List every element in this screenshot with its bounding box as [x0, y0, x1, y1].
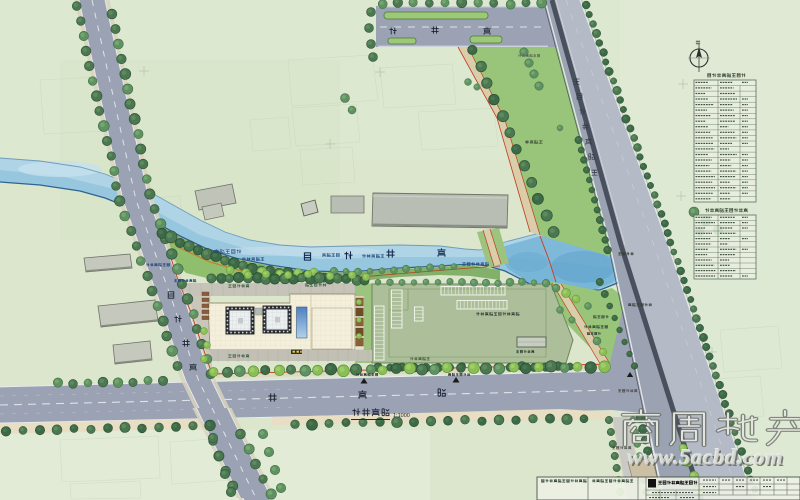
- svg-text:1:1000: 1:1000: [393, 413, 410, 419]
- svg-text:www.5acbd.com: www.5acbd.com: [628, 444, 784, 469]
